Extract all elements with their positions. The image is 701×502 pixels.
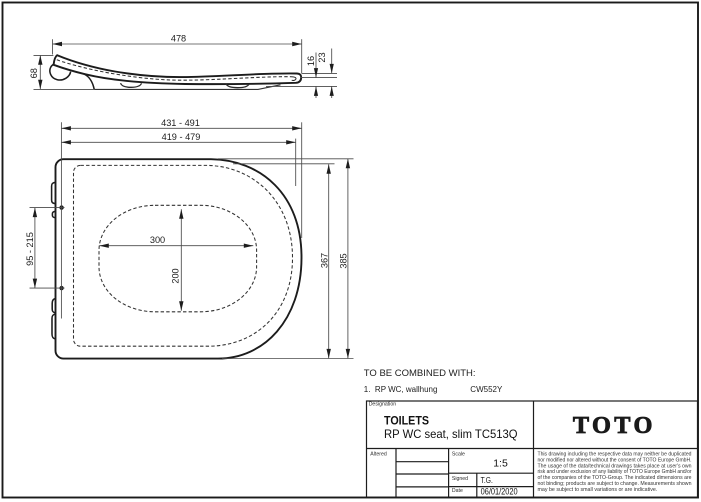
svg-text:1:5: 1:5 [493, 458, 508, 470]
svg-text:200: 200 [171, 268, 181, 283]
svg-text:TOTO: TOTO [573, 412, 656, 439]
svg-text:16: 16 [306, 56, 316, 66]
svg-text:06/01/2020: 06/01/2020 [481, 487, 518, 497]
svg-text:Signed: Signed [452, 476, 468, 482]
svg-text:Altered: Altered [370, 452, 387, 458]
svg-text:431 - 491: 431 - 491 [161, 118, 200, 128]
svg-text:95 - 215: 95 - 215 [25, 232, 35, 266]
svg-text:367: 367 [320, 253, 330, 268]
svg-text:Designation: Designation [369, 402, 397, 408]
svg-text:385: 385 [338, 253, 348, 268]
svg-text:T.G.: T.G. [481, 475, 493, 485]
svg-text:68: 68 [29, 68, 39, 78]
svg-text:478: 478 [171, 34, 186, 44]
svg-text:1. RP WC, wallhung: 1. RP WC, wallhung [364, 385, 438, 394]
svg-text:may be subject to small variat: may be subject to small variations or ar… [538, 487, 658, 493]
svg-text:TO BE COMBINED WITH:: TO BE COMBINED WITH: [364, 368, 476, 379]
svg-text:23: 23 [317, 52, 327, 62]
svg-text:Scale: Scale [452, 452, 465, 458]
svg-text:300: 300 [150, 235, 165, 245]
svg-text:CW552Y: CW552Y [470, 385, 503, 394]
svg-text:419 - 479: 419 - 479 [162, 132, 201, 142]
svg-text:TOILETS: TOILETS [384, 414, 429, 428]
svg-text:RP WC seat, slim TC513Q: RP WC seat, slim TC513Q [384, 428, 518, 441]
svg-text:Date: Date [452, 488, 463, 494]
